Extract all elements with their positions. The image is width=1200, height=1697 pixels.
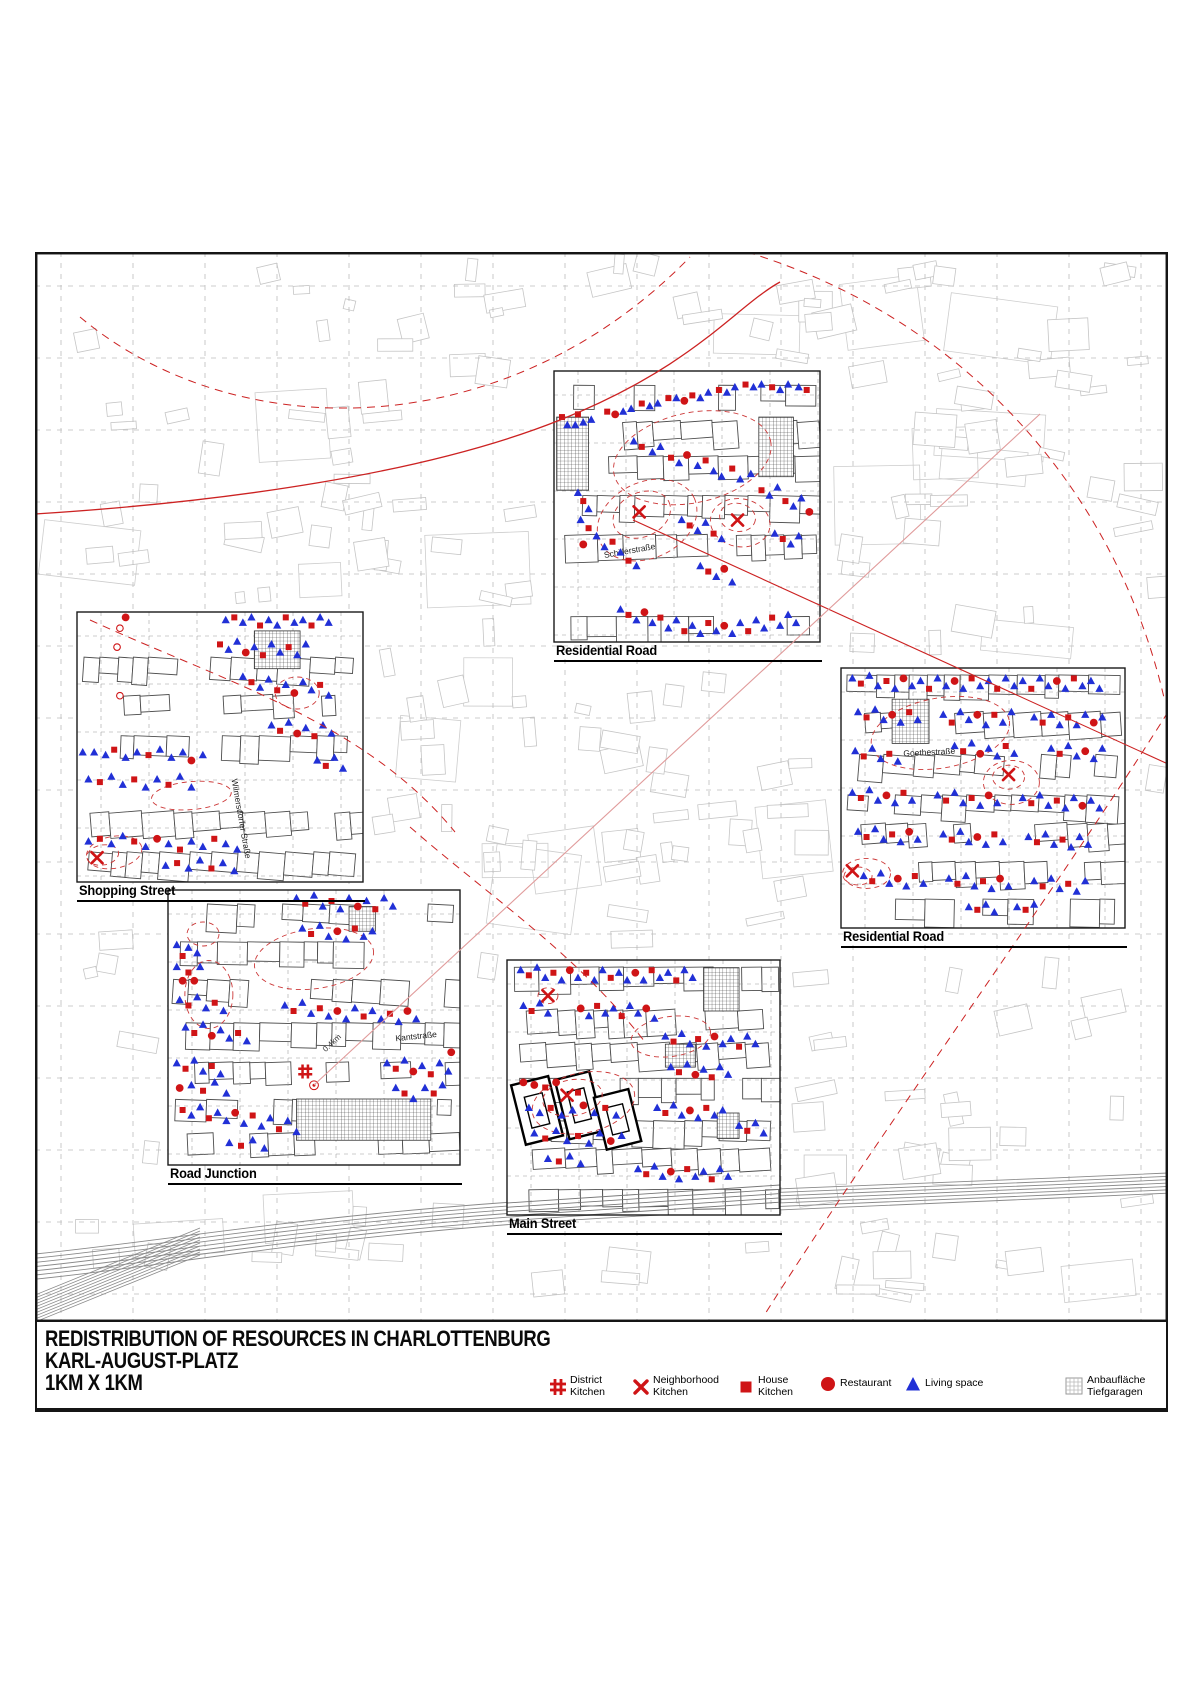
anbauflaeche-area bbox=[892, 699, 929, 743]
house-kitchen-marker bbox=[180, 953, 186, 959]
house-kitchen-marker bbox=[209, 1063, 215, 1069]
legend-item-living-space: Living space bbox=[904, 1375, 983, 1393]
restaurant-marker bbox=[720, 622, 728, 630]
restaurant-marker bbox=[711, 1033, 719, 1041]
house-kitchen-marker bbox=[428, 1071, 434, 1077]
house-kitchen-marker bbox=[146, 752, 152, 758]
restaurant-marker bbox=[973, 833, 981, 841]
house-kitchen-marker bbox=[861, 753, 867, 759]
restaurant-marker bbox=[686, 1107, 694, 1115]
house-kitchen-marker bbox=[277, 728, 283, 734]
house-kitchen-marker bbox=[943, 798, 949, 804]
house-kitchen-marker bbox=[980, 878, 986, 884]
legend-item-neighborhood-kitchen: NeighborhoodKitchen bbox=[632, 1375, 719, 1398]
restaurant-marker bbox=[680, 397, 688, 405]
house-kitchen-marker bbox=[676, 1069, 682, 1075]
house-kitchen-marker bbox=[97, 779, 103, 785]
restaurant-marker bbox=[985, 792, 993, 800]
house-kitchen-marker bbox=[949, 837, 955, 843]
inset-shopping-street: Wilmersdorfer Straße bbox=[77, 612, 365, 882]
house-kitchen-marker bbox=[665, 395, 671, 401]
house-kitchen-marker bbox=[991, 712, 997, 718]
house-kitchen-marker bbox=[758, 487, 764, 493]
house-kitchen-marker bbox=[177, 847, 183, 853]
house-kitchen-marker bbox=[1071, 675, 1077, 681]
house-kitchen-marker bbox=[317, 682, 323, 688]
anbauflaeche-area bbox=[704, 968, 739, 1011]
house-kitchen-marker bbox=[780, 536, 786, 542]
restaurant-marker bbox=[905, 828, 913, 836]
house-kitchen-marker bbox=[183, 1066, 189, 1072]
restaurant-icon bbox=[819, 1375, 837, 1393]
restaurant-marker bbox=[667, 1168, 675, 1176]
restaurant-marker bbox=[691, 1071, 699, 1079]
restaurant-marker bbox=[894, 875, 902, 883]
house-kitchen-marker bbox=[200, 1088, 206, 1094]
restaurant-marker bbox=[996, 875, 1004, 883]
house-kitchen-marker bbox=[886, 751, 892, 757]
house-kitchen-marker bbox=[111, 747, 117, 753]
house-kitchen-marker bbox=[716, 387, 722, 393]
house-kitchen-marker bbox=[769, 615, 775, 621]
restaurant-marker bbox=[1081, 747, 1089, 755]
restaurant-marker bbox=[951, 677, 959, 685]
restaurant-marker bbox=[519, 1079, 527, 1087]
restaurant-marker bbox=[611, 410, 619, 418]
restaurant-marker bbox=[579, 541, 587, 549]
house-kitchen-marker bbox=[610, 539, 616, 545]
restaurant-marker bbox=[631, 969, 639, 977]
house-kitchen-marker bbox=[662, 1110, 668, 1116]
house-kitchen-marker bbox=[352, 926, 358, 932]
house-kitchen-marker bbox=[744, 1128, 750, 1134]
house-kitchen-marker bbox=[1040, 883, 1046, 889]
house-kitchen-marker bbox=[309, 623, 315, 629]
house-kitchen-marker bbox=[291, 1008, 297, 1014]
house-kitchen-marker bbox=[668, 455, 674, 461]
house-kitchen-marker bbox=[323, 763, 329, 769]
restaurant-marker bbox=[208, 1032, 216, 1040]
house-kitchen-marker bbox=[250, 1113, 256, 1119]
house-kitchen-marker bbox=[604, 409, 610, 415]
house-kitchen-marker bbox=[625, 558, 631, 564]
restaurant-marker bbox=[153, 835, 161, 843]
inset-main-street bbox=[507, 960, 788, 1220]
restaurant-marker bbox=[447, 1048, 455, 1056]
house-kitchen-marker bbox=[1040, 720, 1046, 726]
house-kitchen-marker bbox=[625, 612, 631, 618]
legend-label: House bbox=[758, 1375, 793, 1387]
house-kitchen-icon bbox=[737, 1378, 755, 1396]
house-kitchen-marker bbox=[166, 782, 172, 788]
house-kitchen-marker bbox=[208, 866, 214, 872]
house-kitchen-marker bbox=[97, 836, 103, 842]
house-kitchen-marker bbox=[729, 466, 735, 472]
legend: DistrictKitchen NeighborhoodKitchen Hous… bbox=[37, 1322, 1166, 1408]
house-kitchen-marker bbox=[185, 970, 191, 976]
restaurant-marker bbox=[231, 1109, 239, 1117]
legend-label: Neighborhood bbox=[653, 1375, 719, 1387]
house-kitchen-marker bbox=[745, 628, 751, 634]
house-kitchen-marker bbox=[687, 522, 693, 528]
house-kitchen-marker bbox=[1023, 907, 1029, 913]
house-kitchen-marker bbox=[969, 795, 975, 801]
restaurant-marker bbox=[1079, 802, 1087, 810]
restaurant-marker bbox=[122, 614, 130, 622]
house-kitchen-marker bbox=[639, 444, 645, 450]
legend-item-anbauflaeche: AnbauflächeTiefgaragen bbox=[1065, 1375, 1145, 1398]
house-kitchen-marker bbox=[869, 878, 875, 884]
inset-road-junction: Kantstraße0.4km bbox=[168, 890, 472, 1165]
legend-item-house-kitchen: HouseKitchen bbox=[737, 1375, 793, 1398]
house-kitchen-marker bbox=[912, 873, 918, 879]
page: SchillerstraßeWilmersdorfer StraßeKantst… bbox=[0, 0, 1200, 1697]
house-kitchen-marker bbox=[283, 614, 289, 620]
house-kitchen-marker bbox=[217, 641, 223, 647]
house-kitchen-marker bbox=[274, 687, 280, 693]
house-kitchen-marker bbox=[689, 392, 695, 398]
house-kitchen-marker bbox=[206, 1115, 212, 1121]
restaurant-marker bbox=[900, 675, 908, 683]
house-kitchen-marker bbox=[231, 614, 237, 620]
house-kitchen-marker bbox=[926, 686, 932, 692]
legend-label: Restaurant bbox=[840, 1378, 891, 1390]
house-kitchen-marker bbox=[235, 1030, 241, 1036]
house-kitchen-marker bbox=[954, 881, 960, 887]
restaurant-marker bbox=[190, 977, 198, 985]
legend-item-restaurant: Restaurant bbox=[819, 1375, 891, 1393]
house-kitchen-marker bbox=[302, 901, 308, 907]
house-kitchen-marker bbox=[709, 1176, 715, 1182]
house-kitchen-marker bbox=[960, 748, 966, 754]
house-kitchen-marker bbox=[782, 498, 788, 504]
house-kitchen-marker bbox=[174, 860, 180, 866]
house-kitchen-marker bbox=[548, 1105, 554, 1111]
restaurant-marker bbox=[641, 608, 649, 616]
house-kitchen-marker bbox=[684, 1166, 690, 1172]
house-kitchen-marker bbox=[131, 776, 137, 782]
restaurant-marker bbox=[1090, 719, 1098, 727]
house-kitchen-marker bbox=[743, 382, 749, 388]
restaurant-marker bbox=[552, 1079, 560, 1087]
restaurant-marker bbox=[607, 1137, 615, 1145]
house-kitchen-marker bbox=[131, 839, 137, 845]
house-kitchen-marker bbox=[526, 972, 532, 978]
legend-label: Kitchen bbox=[758, 1387, 793, 1399]
legend-label: Kitchen bbox=[653, 1387, 719, 1399]
legend-label: Tiefgaragen bbox=[1087, 1387, 1145, 1399]
house-kitchen-marker bbox=[594, 1003, 600, 1009]
inset-residential-road-top: Schillerstraße bbox=[554, 371, 828, 644]
house-kitchen-marker bbox=[248, 679, 254, 685]
restaurant-marker bbox=[683, 451, 691, 459]
house-kitchen-marker bbox=[711, 531, 717, 537]
house-kitchen-marker bbox=[542, 1085, 548, 1091]
house-kitchen-marker bbox=[673, 977, 679, 983]
house-kitchen-marker bbox=[431, 1091, 437, 1097]
house-kitchen-marker bbox=[238, 1143, 244, 1149]
map-canvas: SchillerstraßeWilmersdorfer StraßeKantst… bbox=[35, 252, 1168, 1322]
restaurant-marker bbox=[404, 1007, 412, 1015]
house-kitchen-marker bbox=[969, 675, 975, 681]
house-kitchen-marker bbox=[580, 498, 586, 504]
house-kitchen-marker bbox=[550, 970, 556, 976]
house-kitchen-marker bbox=[769, 384, 775, 390]
house-kitchen-marker bbox=[602, 1105, 608, 1111]
restaurant-marker bbox=[333, 927, 341, 935]
restaurant-marker bbox=[973, 711, 981, 719]
house-kitchen-marker bbox=[657, 615, 663, 621]
house-kitchen-marker bbox=[703, 457, 709, 463]
house-kitchen-marker bbox=[649, 967, 655, 973]
house-kitchen-marker bbox=[864, 834, 870, 840]
restaurant-marker bbox=[1053, 677, 1061, 685]
house-kitchen-marker bbox=[191, 1030, 197, 1036]
house-kitchen-marker bbox=[643, 1171, 649, 1177]
restaurant-marker bbox=[976, 750, 984, 758]
legend-label: Anbaufläche bbox=[1087, 1375, 1145, 1387]
house-kitchen-marker bbox=[883, 678, 889, 684]
house-kitchen-marker bbox=[575, 1133, 581, 1139]
house-kitchen-marker bbox=[1060, 837, 1066, 843]
house-kitchen-marker bbox=[681, 628, 687, 634]
house-kitchen-marker bbox=[529, 1008, 535, 1014]
house-kitchen-marker bbox=[1065, 881, 1071, 887]
house-kitchen-marker bbox=[804, 387, 810, 393]
house-kitchen-marker bbox=[709, 1074, 715, 1080]
house-kitchen-marker bbox=[329, 898, 335, 904]
house-kitchen-marker bbox=[703, 1105, 709, 1111]
house-kitchen-marker bbox=[257, 623, 263, 629]
anbauflaeche-area bbox=[665, 1044, 695, 1067]
house-kitchen-marker bbox=[286, 644, 292, 650]
house-kitchen-marker bbox=[949, 720, 955, 726]
restaurant-marker bbox=[293, 730, 301, 738]
house-kitchen-marker bbox=[889, 831, 895, 837]
restaurant-marker bbox=[333, 1007, 341, 1015]
house-kitchen-marker bbox=[311, 733, 317, 739]
house-kitchen-marker bbox=[864, 714, 870, 720]
anbauflaeche-area bbox=[759, 417, 794, 477]
neighborhood-kitchen-icon bbox=[632, 1378, 650, 1396]
house-kitchen-marker bbox=[695, 1036, 701, 1042]
house-kitchen-marker bbox=[671, 1039, 677, 1045]
house-kitchen-marker bbox=[1028, 800, 1034, 806]
house-kitchen-marker bbox=[185, 1003, 191, 1009]
house-kitchen-marker bbox=[991, 831, 997, 837]
house-kitchen-marker bbox=[542, 1136, 548, 1142]
anbauflaeche-area bbox=[717, 1113, 739, 1139]
anbauflaeche-icon bbox=[1065, 1377, 1084, 1396]
restaurant-marker bbox=[566, 966, 574, 974]
legend-item-district-kitchen: DistrictKitchen bbox=[549, 1375, 605, 1398]
restaurant-marker bbox=[242, 649, 250, 657]
restaurant-marker bbox=[883, 792, 891, 800]
house-kitchen-marker bbox=[586, 525, 592, 531]
living-space-icon bbox=[904, 1375, 922, 1393]
house-kitchen-marker bbox=[387, 1011, 393, 1017]
house-kitchen-marker bbox=[705, 569, 711, 575]
restaurant-marker bbox=[805, 508, 813, 516]
house-kitchen-marker bbox=[211, 836, 217, 842]
legend-label: Living space bbox=[925, 1378, 983, 1390]
restaurant-marker bbox=[188, 757, 196, 765]
inset-residential-road-right: Goethestraße bbox=[841, 668, 1133, 928]
restaurant-marker bbox=[290, 689, 298, 697]
restaurant-marker bbox=[888, 711, 896, 719]
restaurant-marker bbox=[354, 903, 362, 911]
anbauflaeche-area bbox=[296, 1099, 430, 1140]
legend-label: Kitchen bbox=[570, 1387, 605, 1399]
restaurant-marker bbox=[530, 1081, 538, 1089]
house-kitchen-marker bbox=[212, 1000, 218, 1006]
anbauflaeche-area bbox=[254, 631, 300, 669]
house-kitchen-marker bbox=[858, 795, 864, 801]
house-kitchen-marker bbox=[608, 975, 614, 981]
house-kitchen-marker bbox=[276, 1126, 282, 1132]
restaurant-marker bbox=[176, 1084, 184, 1092]
restaurant-marker bbox=[580, 1101, 588, 1109]
house-kitchen-marker bbox=[556, 1158, 562, 1164]
house-kitchen-marker bbox=[180, 1107, 186, 1113]
house-kitchen-marker bbox=[974, 907, 980, 913]
district-kitchen-icon bbox=[549, 1378, 567, 1396]
legend-label: District bbox=[570, 1375, 605, 1387]
house-kitchen-marker bbox=[639, 401, 645, 407]
house-kitchen-marker bbox=[906, 709, 912, 715]
house-kitchen-marker bbox=[361, 1014, 367, 1020]
inset-boxes: SchillerstraßeWilmersdorfer StraßeKantst… bbox=[77, 371, 1133, 1220]
house-kitchen-marker bbox=[575, 1090, 581, 1096]
house-kitchen-marker bbox=[317, 1005, 323, 1011]
restaurant-marker bbox=[642, 1005, 650, 1013]
restaurant-marker bbox=[409, 1068, 417, 1076]
house-kitchen-marker bbox=[260, 652, 266, 658]
house-kitchen-marker bbox=[1034, 839, 1040, 845]
house-kitchen-marker bbox=[1028, 686, 1034, 692]
restaurant-marker bbox=[179, 977, 187, 985]
house-kitchen-marker bbox=[1003, 743, 1009, 749]
house-kitchen-marker bbox=[705, 620, 711, 626]
house-kitchen-marker bbox=[900, 790, 906, 796]
house-kitchen-marker bbox=[308, 931, 314, 937]
house-kitchen-marker bbox=[402, 1091, 408, 1097]
house-kitchen-marker bbox=[393, 1066, 399, 1072]
title-block: REDISTRIBUTION OF RESOURCES IN CHARLOTTE… bbox=[35, 1322, 1168, 1412]
restaurant-marker bbox=[577, 1005, 585, 1013]
restaurant-marker bbox=[720, 565, 728, 573]
house-kitchen-marker bbox=[858, 681, 864, 687]
house-kitchen-marker bbox=[1054, 798, 1060, 804]
house-kitchen-marker bbox=[736, 1044, 742, 1050]
house-kitchen-marker bbox=[372, 906, 378, 912]
house-kitchen-marker bbox=[1057, 751, 1063, 757]
